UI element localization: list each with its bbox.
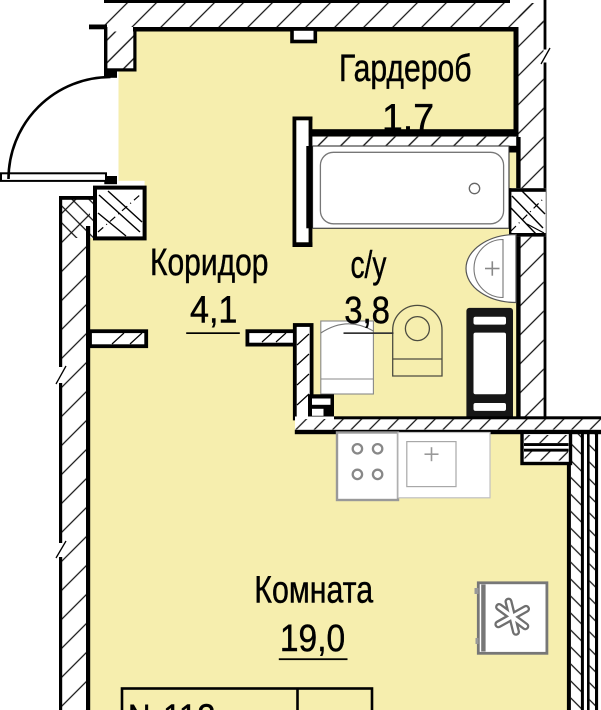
svg-text:19,0: 19,0 — [280, 618, 345, 660]
svg-text:Комната: Комната — [254, 569, 373, 611]
svg-text:с/у: с/у — [351, 244, 387, 286]
svg-text:1,7: 1,7 — [382, 97, 434, 139]
svg-text:Гардероб: Гардероб — [339, 48, 472, 90]
svg-text:3,8: 3,8 — [344, 290, 390, 332]
svg-text:Коридор: Коридор — [150, 242, 269, 284]
svg-text:4,1: 4,1 — [190, 289, 237, 331]
svg-text:№112: №112 — [128, 697, 216, 710]
